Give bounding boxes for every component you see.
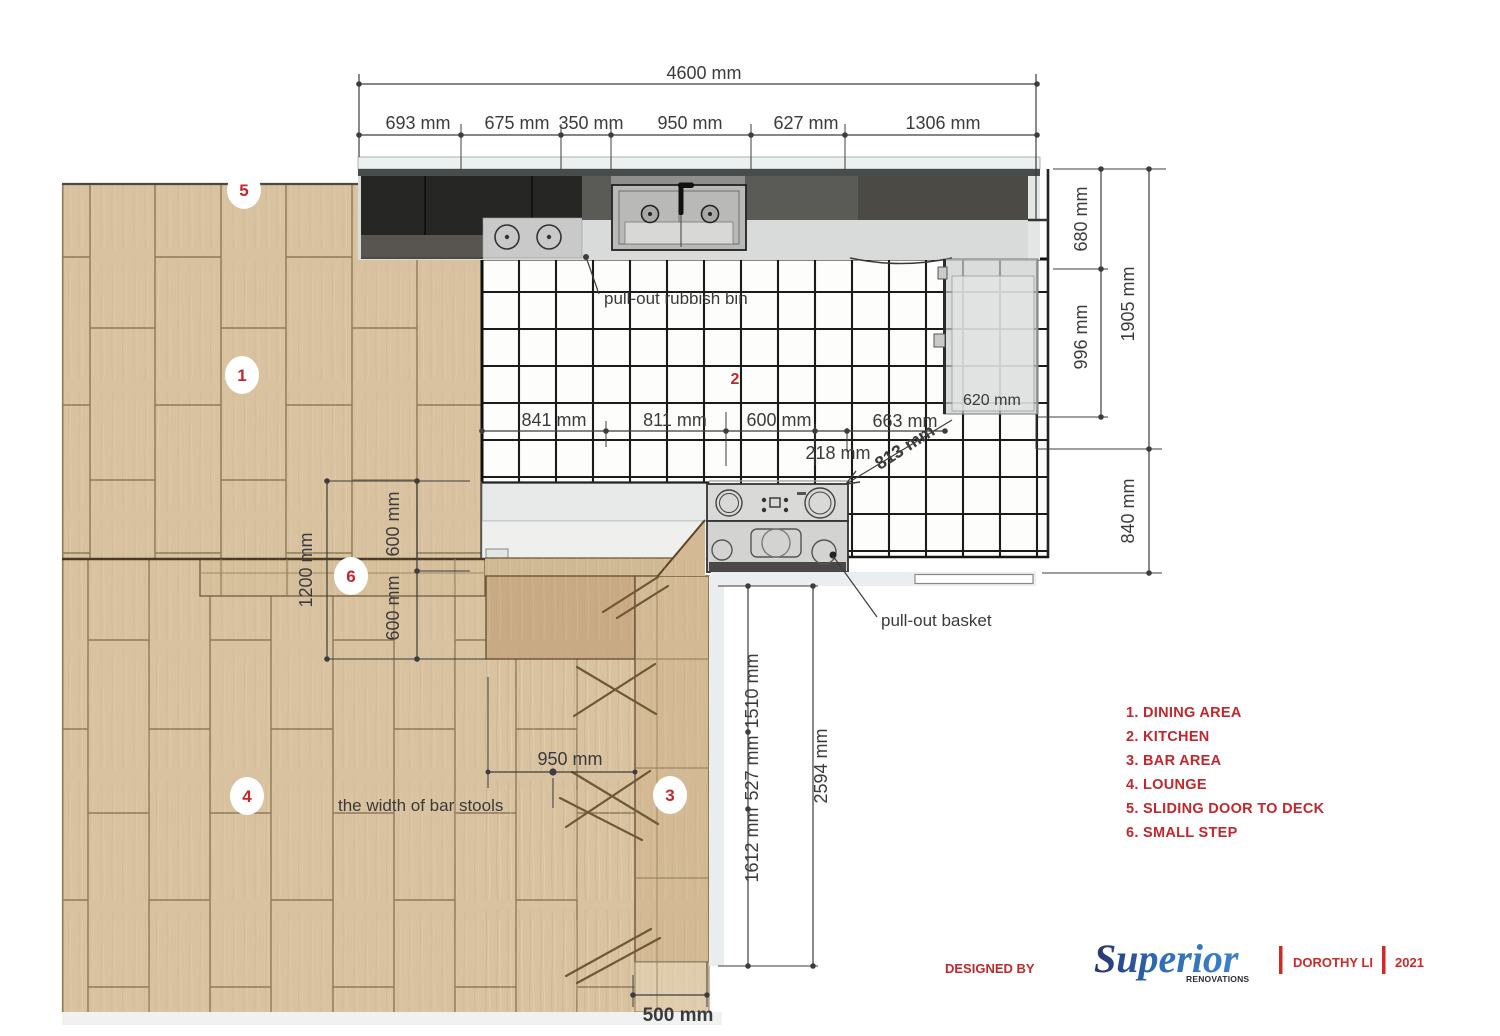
svg-text:527 mm: 527 mm [742,735,762,800]
svg-text:840 mm: 840 mm [1118,478,1138,543]
svg-text:3: 3 [665,786,674,805]
svg-text:2021: 2021 [1395,955,1424,970]
svg-text:620 mm: 620 mm [963,392,1021,409]
svg-text:1. DINING AREA: 1. DINING AREA [1126,705,1242,721]
svg-text:811 mm: 811 mm [643,410,707,430]
svg-text:600 mm: 600 mm [383,575,403,640]
svg-text:4. LOUNGE: 4. LOUNGE [1126,777,1207,793]
svg-text:3. BAR AREA: 3. BAR AREA [1126,753,1222,769]
svg-text:950 mm: 950 mm [657,113,722,133]
svg-text:680 mm: 680 mm [1071,186,1091,251]
svg-text:627 mm: 627 mm [773,113,838,133]
svg-text:350 mm: 350 mm [558,113,623,133]
svg-text:600 mm: 600 mm [383,491,403,556]
svg-text:pull-out basket: pull-out basket [881,611,992,630]
svg-text:600 mm: 600 mm [746,410,811,430]
svg-text:5. SLIDING DOOR TO DECK: 5. SLIDING DOOR TO DECK [1126,801,1325,817]
svg-text:841 mm: 841 mm [521,410,586,430]
svg-text:1905 mm: 1905 mm [1118,266,1138,341]
svg-text:500 mm: 500 mm [643,1005,714,1026]
svg-text:1306 mm: 1306 mm [905,113,980,133]
svg-text:996 mm: 996 mm [1071,304,1091,369]
svg-text:675 mm: 675 mm [484,113,549,133]
svg-text:the width of bar stools: the width of bar stools [338,796,503,815]
svg-text:1510 mm: 1510 mm [742,653,762,728]
svg-text:1: 1 [237,366,246,385]
svg-text:1612 mm: 1612 mm [742,807,762,882]
svg-text:RENOVATIONS: RENOVATIONS [1186,974,1249,984]
svg-text:2. KITCHEN: 2. KITCHEN [1126,729,1210,745]
svg-text:693 mm: 693 mm [385,113,450,133]
svg-text:6: 6 [346,567,355,586]
svg-text:1200 mm: 1200 mm [296,532,316,607]
svg-text:5: 5 [239,181,248,200]
svg-text:950 mm: 950 mm [537,749,602,769]
svg-text:DOROTHY LI: DOROTHY LI [1293,955,1373,970]
svg-text:2594 mm: 2594 mm [811,728,831,803]
svg-text:DESIGNED BY: DESIGNED BY [945,961,1035,976]
svg-text:4600 mm: 4600 mm [666,63,741,83]
svg-text:2: 2 [731,371,740,388]
svg-text:pull-out rubbish bin: pull-out rubbish bin [604,289,748,308]
svg-text:6. SMALL STEP: 6. SMALL STEP [1126,825,1238,841]
svg-text:4: 4 [242,787,252,806]
svg-text:218 mm: 218 mm [805,443,870,463]
